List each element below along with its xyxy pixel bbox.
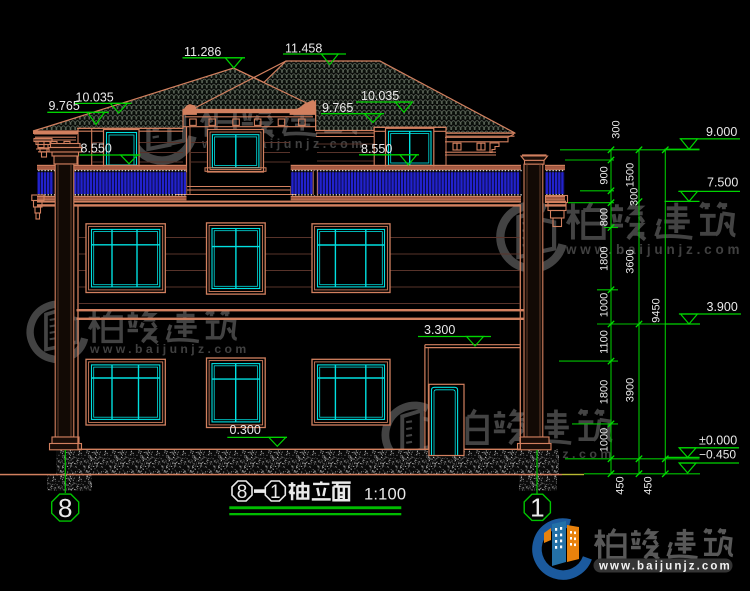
svg-text:450: 450 <box>642 476 654 494</box>
svg-text:300: 300 <box>628 188 640 206</box>
svg-text:1500: 1500 <box>624 163 636 187</box>
svg-text:300: 300 <box>610 120 622 138</box>
svg-text:0.300: 0.300 <box>230 423 261 437</box>
svg-text:1800: 1800 <box>598 246 610 270</box>
svg-text:9.000: 9.000 <box>706 125 737 139</box>
svg-text:800: 800 <box>598 208 610 226</box>
svg-text:1100: 1100 <box>598 330 610 354</box>
svg-text:1000: 1000 <box>598 293 610 317</box>
svg-text:1:100: 1:100 <box>364 486 406 504</box>
svg-text:www.baijunjz.com: www.baijunjz.com <box>89 342 250 356</box>
svg-text:±0.000: ±0.000 <box>699 433 737 447</box>
svg-text:www.baijunjz.com: www.baijunjz.com <box>565 242 743 257</box>
svg-text:www.baijunjz.com: www.baijunjz.com <box>598 561 732 573</box>
svg-text:1000: 1000 <box>598 428 610 452</box>
svg-text:10.035: 10.035 <box>76 90 114 104</box>
svg-text:−0.450: −0.450 <box>699 448 736 462</box>
svg-text:3600: 3600 <box>624 249 636 273</box>
svg-text:1: 1 <box>530 493 544 523</box>
svg-text:9.765: 9.765 <box>49 99 80 113</box>
svg-text:3900: 3900 <box>624 378 636 402</box>
svg-text:11.286: 11.286 <box>184 45 221 59</box>
svg-text:8: 8 <box>237 482 248 503</box>
svg-text:1800: 1800 <box>598 380 610 404</box>
svg-text:9450: 9450 <box>651 298 663 322</box>
svg-text:900: 900 <box>598 166 610 184</box>
svg-text:450: 450 <box>614 476 626 494</box>
svg-text:10.035: 10.035 <box>361 89 399 103</box>
svg-text:9.765: 9.765 <box>322 101 353 115</box>
svg-text:3.900: 3.900 <box>707 300 738 314</box>
svg-text:1: 1 <box>270 482 281 503</box>
svg-text:8.550: 8.550 <box>361 142 392 156</box>
svg-text:8.550: 8.550 <box>81 141 112 155</box>
svg-text:3.300: 3.300 <box>424 323 455 337</box>
svg-text:7.500: 7.500 <box>707 176 738 190</box>
svg-text:8: 8 <box>58 493 72 523</box>
